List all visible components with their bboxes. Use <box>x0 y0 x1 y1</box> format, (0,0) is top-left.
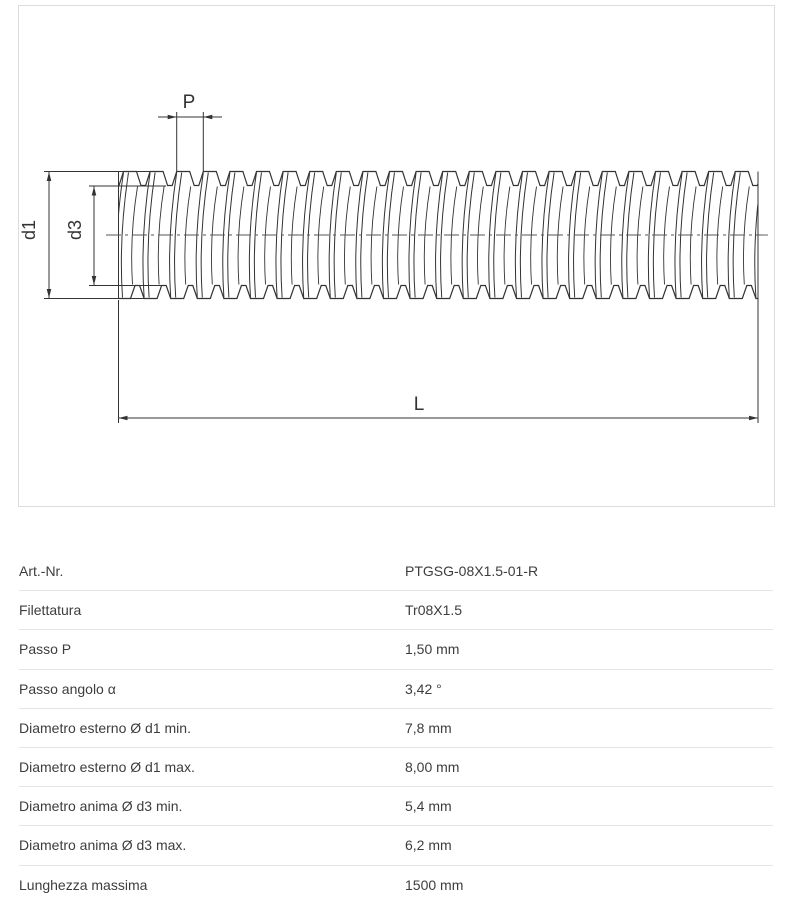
spec-value: 8,00 mm <box>405 747 773 786</box>
spec-label: Diametro anima Ø d3 min. <box>19 787 405 826</box>
spec-value: 7,8 mm <box>405 708 773 747</box>
spec-value: Tr08X1.5 <box>405 591 773 630</box>
outer-diameter-label: d1 <box>19 220 39 240</box>
dimension-pitch: P <box>158 92 222 171</box>
spec-label: Diametro esterno Ø d1 min. <box>19 708 405 747</box>
spec-label: Diametro esterno Ø d1 max. <box>19 747 405 786</box>
pitch-dimension-label: P <box>183 92 196 113</box>
spec-value: 3,42 ° <box>405 669 773 708</box>
lead-screw-drawing: P d1 d3 <box>19 6 774 506</box>
spec-row: FilettaturaTr08X1.5 <box>19 591 773 630</box>
spec-label: Lunghezza massima <box>19 865 405 904</box>
dimension-length: L <box>119 300 759 423</box>
spec-value: 6,2 mm <box>405 826 773 865</box>
spec-row: Art.-Nr.PTGSG-08X1.5-01-R <box>19 552 773 591</box>
spec-row: Passo P1,50 mm <box>19 630 773 669</box>
technical-drawing-panel: P d1 d3 <box>18 5 775 507</box>
spec-value: PTGSG-08X1.5-01-R <box>405 552 773 591</box>
rod-end-lines <box>119 172 759 301</box>
spec-row: Diametro anima Ø d3 min.5,4 mm <box>19 787 773 826</box>
product-spec-page: P d1 d3 <box>0 0 796 904</box>
spec-value: 1500 mm <box>405 865 773 904</box>
spec-label: Filettatura <box>19 591 405 630</box>
spec-label: Passo P <box>19 630 405 669</box>
spec-row: Diametro esterno Ø d1 min.7,8 mm <box>19 708 773 747</box>
spec-value: 5,4 mm <box>405 787 773 826</box>
length-dimension-label: L <box>414 394 425 415</box>
spec-row: Lunghezza massima1500 mm <box>19 865 773 904</box>
spec-row: Passo angolo α3,42 ° <box>19 669 773 708</box>
spec-row: Diametro esterno Ø d1 max.8,00 mm <box>19 747 773 786</box>
spec-row: Diametro anima Ø d3 max.6,2 mm <box>19 826 773 865</box>
dimension-core-diameter: d3 <box>65 186 166 286</box>
spec-label: Art.-Nr. <box>19 552 405 591</box>
spec-value: 1,50 mm <box>405 630 773 669</box>
spec-table: Art.-Nr.PTGSG-08X1.5-01-RFilettaturaTr08… <box>19 552 773 904</box>
core-diameter-label: d3 <box>65 220 85 240</box>
spec-label: Passo angolo α <box>19 669 405 708</box>
spec-label: Diametro anima Ø d3 max. <box>19 826 405 865</box>
